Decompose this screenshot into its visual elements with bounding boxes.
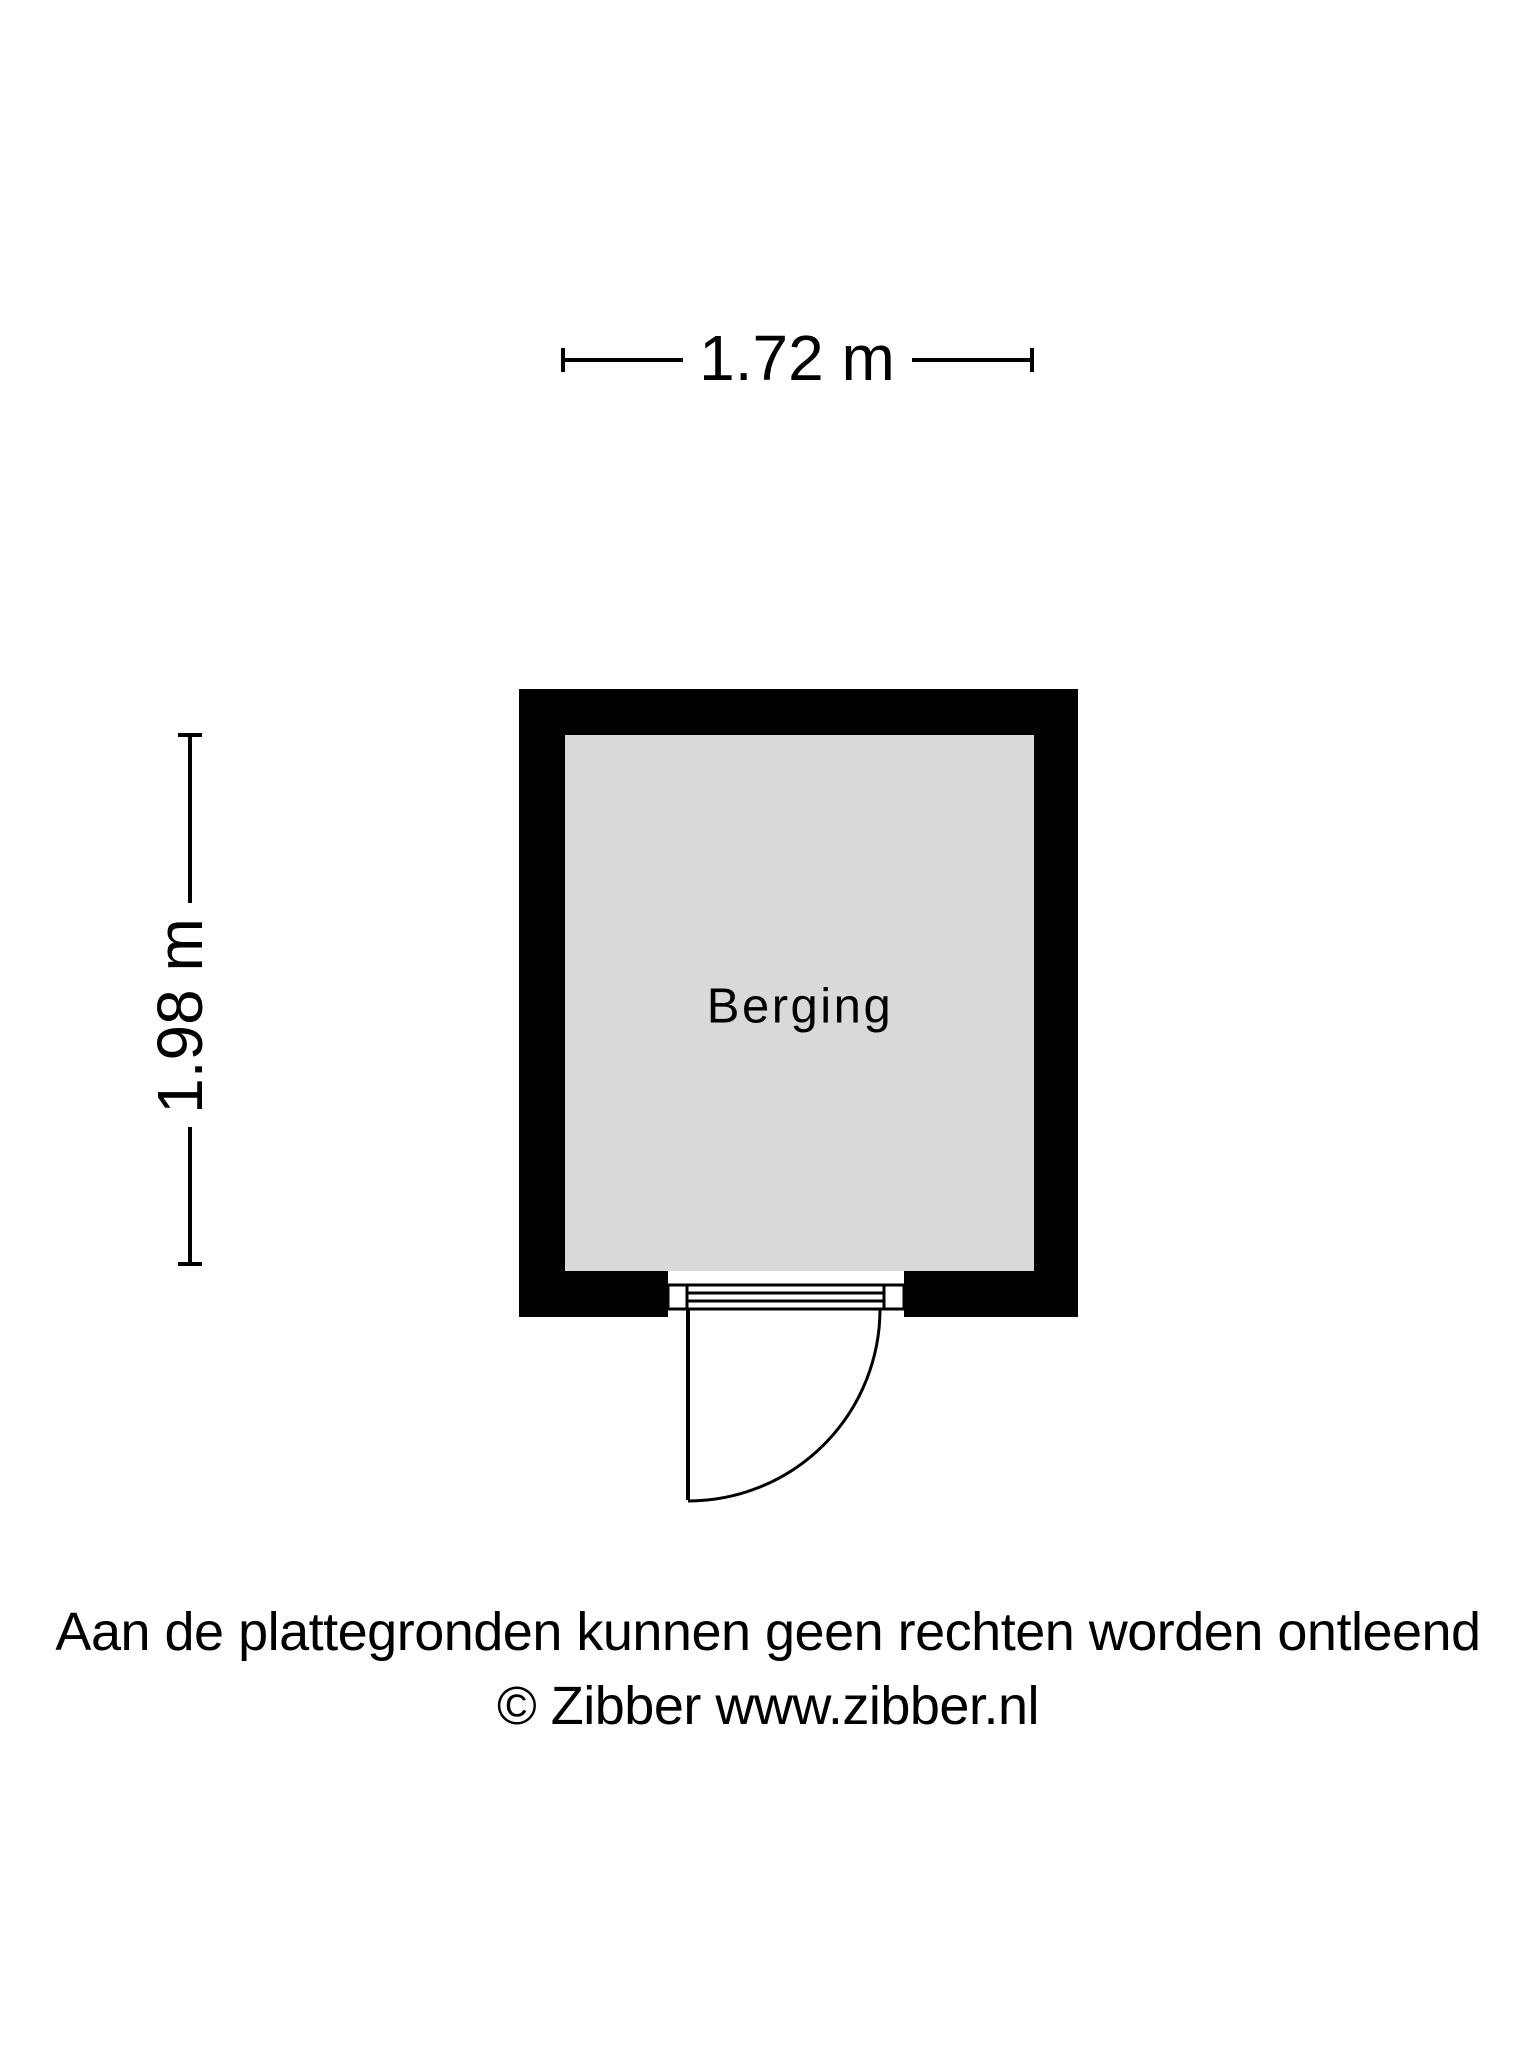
dimension-width-label: 1.72 m	[699, 326, 895, 390]
door	[668, 1285, 904, 1501]
door-jamb-right	[884, 1285, 904, 1309]
dimension-top-line-left	[563, 358, 683, 362]
door-jamb-left	[668, 1285, 687, 1309]
footer-disclaimer: Aan de plattegronden kunnen geen rechten…	[55, 1605, 1480, 1659]
dimension-left-line-bottom	[188, 1127, 192, 1266]
door-threshold	[687, 1285, 884, 1309]
room-name-label: Berging	[707, 983, 893, 1032]
dimension-top-line-right	[912, 358, 1032, 362]
door-swing-arc	[688, 1309, 880, 1501]
dimension-height-label: 1.98 m	[148, 918, 212, 1114]
dimension-left-line-top	[188, 733, 192, 903]
footer-credit: © Zibber www.zibber.nl	[497, 1679, 1039, 1733]
floorplan-page: 1.72 m 1.98 m Berging Aan de plattegrond…	[0, 0, 1536, 2048]
